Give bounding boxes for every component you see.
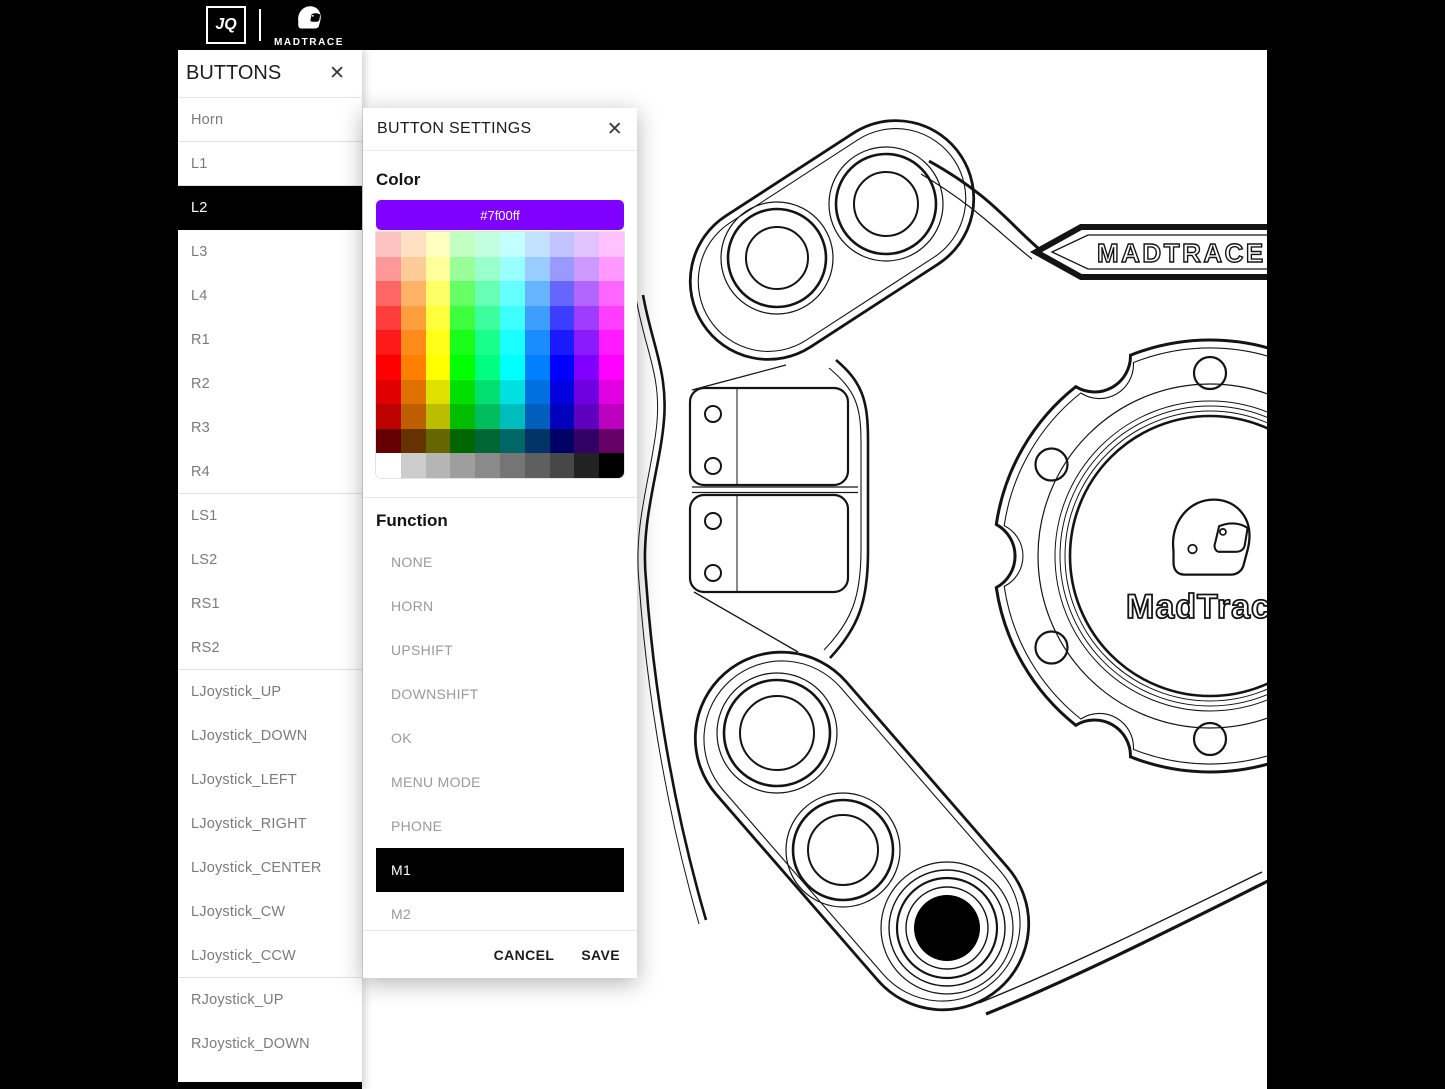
palette-swatch[interactable] bbox=[550, 429, 575, 454]
palette-swatch[interactable] bbox=[475, 429, 500, 454]
pill-brand-text: MADTRACE bbox=[1097, 238, 1266, 268]
content-area: MADTRACE MadTrace bbox=[178, 50, 1267, 1089]
palette-swatch[interactable] bbox=[525, 232, 550, 257]
palette-swatch[interactable] bbox=[401, 232, 426, 257]
color-section-label: Color bbox=[376, 170, 420, 190]
palette-swatch[interactable] bbox=[574, 232, 599, 257]
palette-swatch[interactable] bbox=[574, 380, 599, 405]
palette-swatch[interactable] bbox=[450, 429, 475, 454]
sidebar-item-ljoystick-right[interactable]: LJoystick_RIGHT bbox=[178, 802, 362, 846]
function-option-ok[interactable]: OK bbox=[376, 716, 624, 760]
connector-plates bbox=[690, 360, 868, 658]
bottom-pod-button-middle[interactable] bbox=[786, 793, 900, 907]
palette-swatch[interactable] bbox=[599, 330, 624, 355]
palette-swatch-gray[interactable] bbox=[475, 453, 500, 478]
palette-swatch[interactable] bbox=[475, 380, 500, 405]
palette-swatch[interactable] bbox=[574, 429, 599, 454]
sidebar-item-r3[interactable]: R3 bbox=[178, 406, 362, 450]
sidebar-item-rjoystick-up[interactable]: RJoystick_UP bbox=[178, 978, 362, 1022]
topbar-divider bbox=[259, 9, 261, 41]
palette-swatch[interactable] bbox=[376, 306, 401, 331]
palette-swatch[interactable] bbox=[550, 404, 575, 429]
palette-swatch[interactable] bbox=[574, 330, 599, 355]
palette-swatch-gray[interactable] bbox=[500, 453, 525, 478]
cancel-button[interactable]: CANCEL bbox=[494, 947, 555, 963]
function-section-label: Function bbox=[376, 511, 448, 531]
sidebar-list: HornL1L2L3L4R1R2R3R4LS1LS2RS1RS2LJoystic… bbox=[178, 98, 362, 1066]
palette-swatch[interactable] bbox=[426, 306, 451, 331]
palette-swatch[interactable] bbox=[550, 306, 575, 331]
palette-swatch[interactable] bbox=[401, 355, 426, 380]
palette-swatch[interactable] bbox=[525, 330, 550, 355]
palette-swatch[interactable] bbox=[599, 429, 624, 454]
palette-swatch[interactable] bbox=[376, 257, 401, 282]
sidebar-header: BUTTONS ✕ bbox=[178, 50, 362, 98]
palette-swatch[interactable] bbox=[401, 281, 426, 306]
palette-swatch-gray[interactable] bbox=[376, 453, 401, 478]
madtrace-logo[interactable]: MADTRACE bbox=[274, 4, 344, 48]
palette-swatch[interactable] bbox=[450, 330, 475, 355]
palette-swatch[interactable] bbox=[376, 404, 401, 429]
function-option-phone[interactable]: PHONE bbox=[376, 804, 624, 848]
palette-swatch[interactable] bbox=[525, 404, 550, 429]
button-settings-modal: BUTTON SETTINGS ✕ Color #7f00ff Function… bbox=[363, 108, 637, 978]
sidebar-item-l4[interactable]: L4 bbox=[178, 274, 362, 318]
palette-swatch[interactable] bbox=[599, 257, 624, 282]
letterbox-left bbox=[0, 0, 178, 1089]
sidebar-item-ljoystick-up[interactable]: LJoystick_UP bbox=[178, 670, 362, 714]
palette-swatch[interactable] bbox=[500, 355, 525, 380]
palette-swatch-gray[interactable] bbox=[574, 453, 599, 478]
palette-swatch[interactable] bbox=[450, 281, 475, 306]
palette-swatch[interactable] bbox=[475, 404, 500, 429]
top-pod-button-right[interactable] bbox=[829, 147, 943, 261]
palette-swatch[interactable] bbox=[450, 232, 475, 257]
sidebar-partial-row bbox=[178, 1082, 362, 1089]
palette-swatch[interactable] bbox=[426, 429, 451, 454]
modal-footer: CANCEL SAVE bbox=[363, 930, 637, 978]
sidebar-item-ljoystick-down[interactable]: LJoystick_DOWN bbox=[178, 714, 362, 758]
palette-swatch[interactable] bbox=[475, 257, 500, 282]
function-option-none[interactable]: NONE bbox=[376, 540, 624, 584]
palette-swatch[interactable] bbox=[550, 330, 575, 355]
sidebar-item-rs1[interactable]: RS1 bbox=[178, 582, 362, 626]
palette-swatch[interactable] bbox=[475, 232, 500, 257]
palette-swatch[interactable] bbox=[599, 232, 624, 257]
palette-swatch[interactable] bbox=[574, 355, 599, 380]
palette-swatch[interactable] bbox=[426, 404, 451, 429]
wheel-hub: MadTrace bbox=[996, 340, 1267, 772]
section-divider bbox=[363, 497, 637, 498]
palette-swatch[interactable] bbox=[475, 306, 500, 331]
palette-swatch[interactable] bbox=[376, 330, 401, 355]
palette-swatch[interactable] bbox=[599, 355, 624, 380]
palette-swatch[interactable] bbox=[599, 306, 624, 331]
palette-swatch[interactable] bbox=[426, 232, 451, 257]
top-button-pod bbox=[660, 91, 1003, 390]
jq-logo[interactable]: JQ bbox=[206, 6, 246, 44]
palette-swatch[interactable] bbox=[475, 355, 500, 380]
palette-swatch[interactable] bbox=[525, 355, 550, 380]
palette-swatch-gray[interactable] bbox=[450, 453, 475, 478]
palette-swatch[interactable] bbox=[550, 232, 575, 257]
palette-swatch[interactable] bbox=[376, 380, 401, 405]
palette-swatch[interactable] bbox=[475, 330, 500, 355]
hub-brand-text: MadTrace bbox=[1126, 588, 1267, 626]
palette-swatch[interactable] bbox=[401, 404, 426, 429]
palette-swatch[interactable] bbox=[401, 330, 426, 355]
sidebar-item-r1[interactable]: R1 bbox=[178, 318, 362, 362]
palette-swatch[interactable] bbox=[500, 404, 525, 429]
selected-color-bar[interactable]: #7f00ff bbox=[376, 200, 624, 230]
palette-swatch[interactable] bbox=[426, 330, 451, 355]
sidebar-item-ls1[interactable]: LS1 bbox=[178, 494, 362, 538]
palette-swatch[interactable] bbox=[599, 404, 624, 429]
palette-swatch[interactable] bbox=[401, 429, 426, 454]
palette-swatch[interactable] bbox=[426, 281, 451, 306]
sidebar-item-l1[interactable]: L1 bbox=[178, 142, 362, 186]
palette-swatch[interactable] bbox=[426, 355, 451, 380]
palette-swatch[interactable] bbox=[550, 380, 575, 405]
palette-swatch[interactable] bbox=[450, 355, 475, 380]
function-option-menu-mode[interactable]: MENU MODE bbox=[376, 760, 624, 804]
selected-color-hex: #7f00ff bbox=[480, 208, 520, 223]
modal-header: BUTTON SETTINGS ✕ bbox=[363, 108, 637, 151]
sidebar-item-r4[interactable]: R4 bbox=[178, 450, 362, 494]
palette-swatch[interactable] bbox=[574, 257, 599, 282]
palette-swatch[interactable] bbox=[401, 380, 426, 405]
palette-swatch[interactable] bbox=[450, 257, 475, 282]
palette-swatch-gray[interactable] bbox=[401, 453, 426, 478]
palette-swatch[interactable] bbox=[401, 257, 426, 282]
palette-swatch[interactable] bbox=[500, 257, 525, 282]
palette-swatch[interactable] bbox=[525, 380, 550, 405]
palette-swatch[interactable] bbox=[376, 232, 401, 257]
palette-swatch[interactable] bbox=[599, 380, 624, 405]
sidebar-item-rs2[interactable]: RS2 bbox=[178, 626, 362, 670]
palette-swatch[interactable] bbox=[376, 281, 401, 306]
palette-swatch-gray[interactable] bbox=[550, 453, 575, 478]
palette-grid bbox=[376, 232, 624, 478]
sidebar-item-ljoystick-center[interactable]: LJoystick_CENTER bbox=[178, 846, 362, 890]
helmet-icon bbox=[294, 4, 325, 36]
function-option-m2[interactable]: M2 bbox=[376, 892, 624, 930]
sidebar-item-l3[interactable]: L3 bbox=[178, 230, 362, 274]
palette-swatch[interactable] bbox=[426, 380, 451, 405]
brand-stalk: MADTRACE bbox=[921, 161, 1267, 277]
palette-swatch[interactable] bbox=[550, 281, 575, 306]
palette-swatch[interactable] bbox=[475, 281, 500, 306]
palette-swatch[interactable] bbox=[574, 306, 599, 331]
letterbox-right bbox=[1267, 0, 1445, 1089]
sidebar-item-l2[interactable]: L2 bbox=[178, 186, 362, 230]
palette-swatch[interactable] bbox=[525, 281, 550, 306]
modal-close-icon[interactable]: ✕ bbox=[607, 120, 623, 139]
modal-title: BUTTON SETTINGS bbox=[377, 120, 531, 138]
palette-swatch[interactable] bbox=[500, 232, 525, 257]
bottom-button-pod bbox=[660, 617, 1267, 1045]
buttons-sidebar: BUTTONS ✕ HornL1L2L3L4R1R2R3R4LS1LS2RS1R… bbox=[178, 50, 362, 1089]
palette-swatch[interactable] bbox=[599, 281, 624, 306]
hub-helmet-logo bbox=[1173, 500, 1249, 575]
bottom-pod-button-top[interactable] bbox=[717, 673, 837, 793]
palette-swatch[interactable] bbox=[376, 355, 401, 380]
palette-swatch[interactable] bbox=[550, 355, 575, 380]
palette-swatch[interactable] bbox=[450, 380, 475, 405]
sidebar-item-ljoystick-ccw[interactable]: LJoystick_CCW bbox=[178, 934, 362, 978]
palette-swatch[interactable] bbox=[376, 429, 401, 454]
palette-swatch[interactable] bbox=[574, 281, 599, 306]
function-option-upshift[interactable]: UPSHIFT bbox=[376, 628, 624, 672]
app-screen: JQ MADTRACE bbox=[0, 0, 1445, 1089]
sidebar-close-icon[interactable]: ✕ bbox=[329, 64, 345, 83]
palette-swatch[interactable] bbox=[450, 306, 475, 331]
palette-swatch[interactable] bbox=[401, 306, 426, 331]
sidebar-item-ls2[interactable]: LS2 bbox=[178, 538, 362, 582]
palette-swatch[interactable] bbox=[426, 257, 451, 282]
palette-swatch[interactable] bbox=[525, 306, 550, 331]
function-option-horn[interactable]: HORN bbox=[376, 584, 624, 628]
palette-swatch[interactable] bbox=[500, 306, 525, 331]
palette-swatch-gray[interactable] bbox=[599, 453, 624, 478]
sidebar-item-r2[interactable]: R2 bbox=[178, 362, 362, 406]
palette-swatch[interactable] bbox=[550, 257, 575, 282]
palette-swatch[interactable] bbox=[450, 404, 475, 429]
jq-logo-text: JQ bbox=[215, 16, 236, 34]
palette-swatch[interactable] bbox=[525, 257, 550, 282]
sidebar-item-ljoystick-left[interactable]: LJoystick_LEFT bbox=[178, 758, 362, 802]
palette-swatch[interactable] bbox=[525, 429, 550, 454]
function-option-downshift[interactable]: DOWNSHIFT bbox=[376, 672, 624, 716]
function-option-m1[interactable]: M1 bbox=[376, 848, 624, 892]
palette-swatch-gray[interactable] bbox=[426, 453, 451, 478]
palette-swatch[interactable] bbox=[500, 330, 525, 355]
top-bar: JQ MADTRACE bbox=[178, 0, 1267, 50]
sidebar-item-ljoystick-cw[interactable]: LJoystick_CW bbox=[178, 890, 362, 934]
function-list: NONEHORNUPSHIFTDOWNSHIFTOKMENU MODEPHONE… bbox=[363, 540, 637, 930]
palette-swatch[interactable] bbox=[500, 281, 525, 306]
sidebar-item-horn[interactable]: Horn bbox=[178, 98, 362, 142]
bottom-pod-button-selected[interactable] bbox=[881, 862, 1013, 994]
palette-swatch[interactable] bbox=[574, 404, 599, 429]
brand-text: MADTRACE bbox=[274, 37, 344, 48]
palette-swatch-gray[interactable] bbox=[525, 453, 550, 478]
save-button[interactable]: SAVE bbox=[581, 947, 620, 963]
top-pod-button-left[interactable] bbox=[721, 202, 833, 314]
sidebar-item-rjoystick-down[interactable]: RJoystick_DOWN bbox=[178, 1022, 362, 1066]
palette-swatch[interactable] bbox=[500, 380, 525, 405]
palette-swatch[interactable] bbox=[500, 429, 525, 454]
sidebar-title: BUTTONS bbox=[186, 62, 281, 85]
